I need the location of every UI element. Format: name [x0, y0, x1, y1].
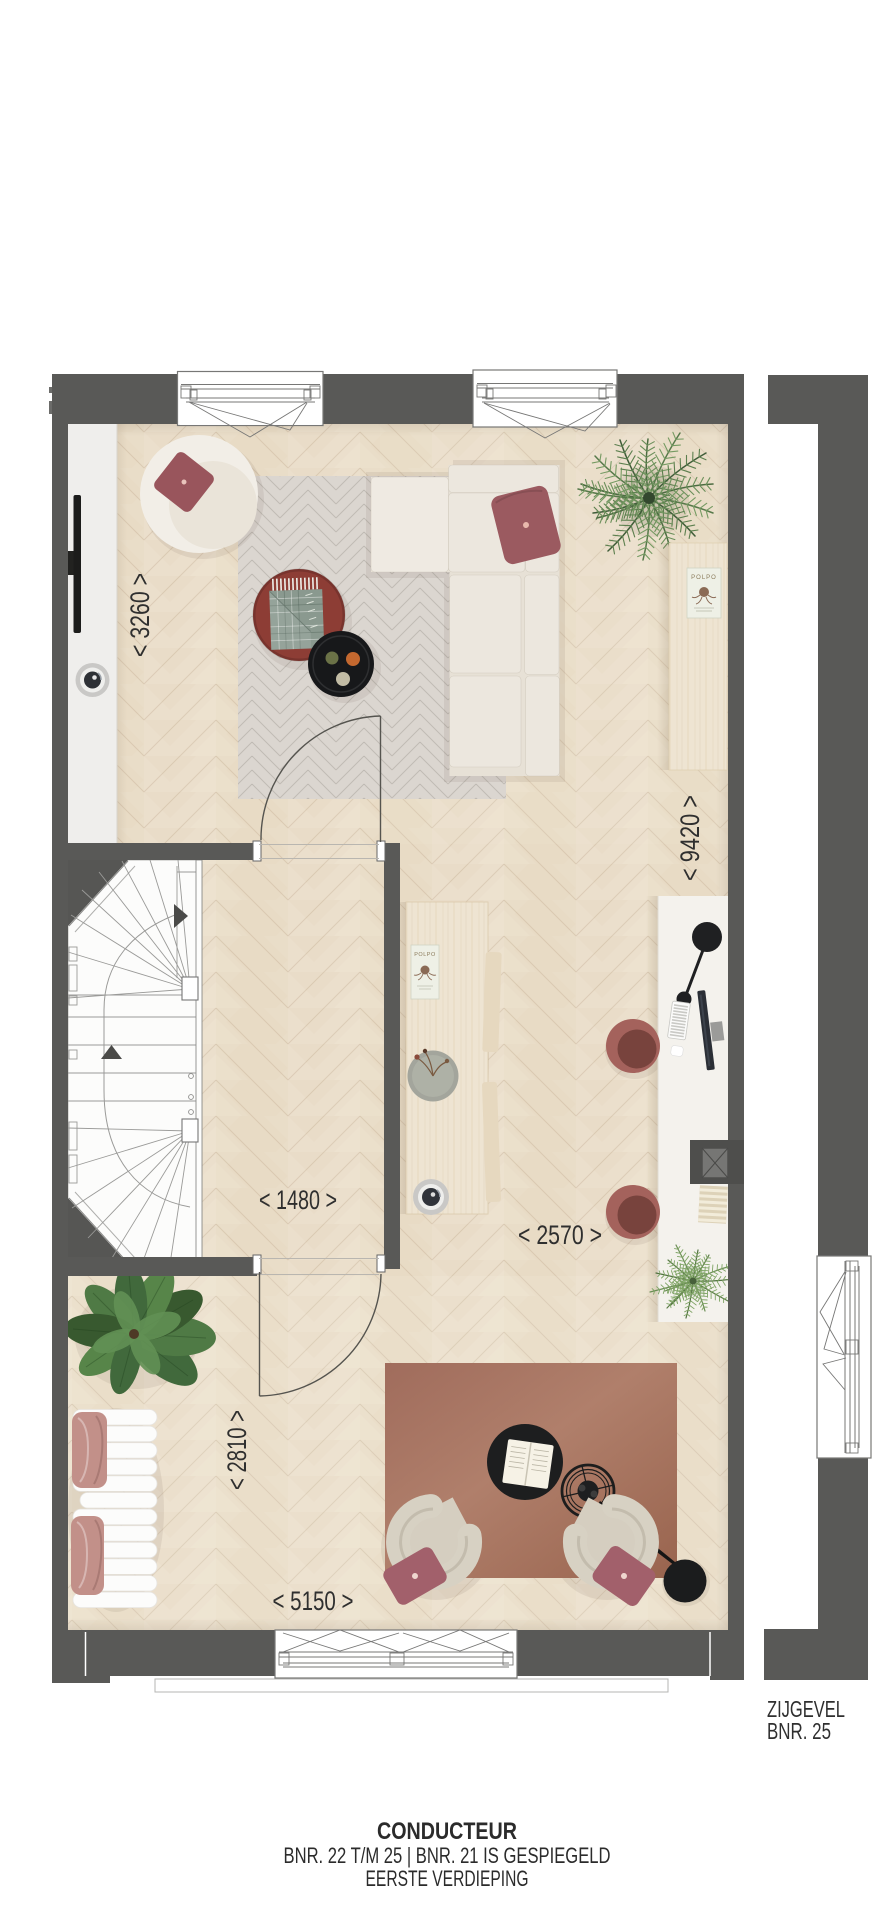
svg-text:< 2570 >: < 2570 >: [518, 1220, 602, 1250]
svg-text:POLPO: POLPO: [691, 575, 717, 581]
svg-text:< 5150 >: < 5150 >: [273, 1586, 354, 1616]
svg-text:BNR. 25: BNR. 25: [767, 1718, 831, 1744]
svg-text:< 2810 >: < 2810 >: [222, 1410, 252, 1490]
svg-text:< 1480 >: < 1480 >: [259, 1185, 337, 1215]
svg-text:CONDUCTEUR: CONDUCTEUR: [377, 1818, 517, 1845]
svg-text:< 9420 >: < 9420 >: [675, 795, 705, 881]
svg-text:< 3260 >: < 3260 >: [125, 573, 155, 657]
svg-text:POLPO: POLPO: [414, 952, 436, 958]
svg-text:BNR. 22 T/M 25 | BNR. 21 IS GE: BNR. 22 T/M 25 | BNR. 21 IS GESPIEGELD: [284, 1843, 611, 1868]
svg-text:EERSTE VERDIEPING: EERSTE VERDIEPING: [366, 1866, 529, 1891]
